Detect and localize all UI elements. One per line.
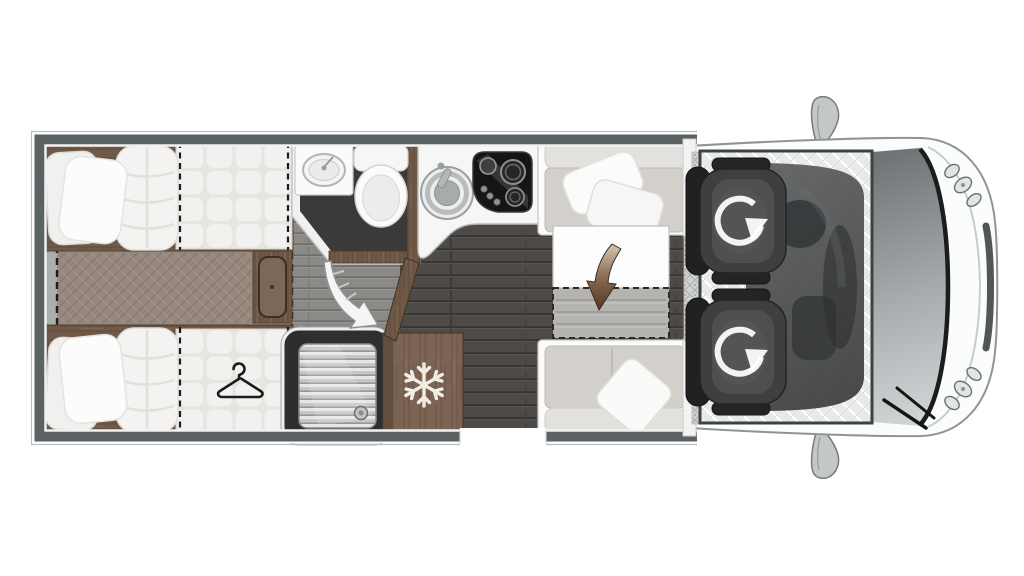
floorplan-canvas bbox=[0, 0, 1024, 576]
washbasin bbox=[295, 145, 353, 195]
hob bbox=[473, 152, 532, 212]
cab-swivel-seat bbox=[686, 289, 786, 415]
mirror-top bbox=[812, 97, 839, 142]
mirror-bottom bbox=[812, 433, 839, 478]
shower bbox=[281, 327, 392, 445]
motorhome-floorplan bbox=[0, 0, 1024, 576]
cab-swivel-seat bbox=[686, 158, 786, 284]
pillow bbox=[57, 155, 129, 246]
toilet bbox=[354, 145, 408, 227]
pillow bbox=[58, 333, 129, 425]
fridge bbox=[383, 333, 463, 433]
dinette-bench-bottom bbox=[538, 340, 692, 440]
dinette-table bbox=[553, 226, 669, 338]
rear-bedroom bbox=[42, 139, 293, 437]
bed-top bbox=[42, 139, 293, 251]
bed-bottom bbox=[42, 325, 293, 437]
entry-door-opening bbox=[460, 428, 546, 448]
dinette bbox=[538, 137, 692, 440]
cab-interior bbox=[684, 151, 872, 424]
